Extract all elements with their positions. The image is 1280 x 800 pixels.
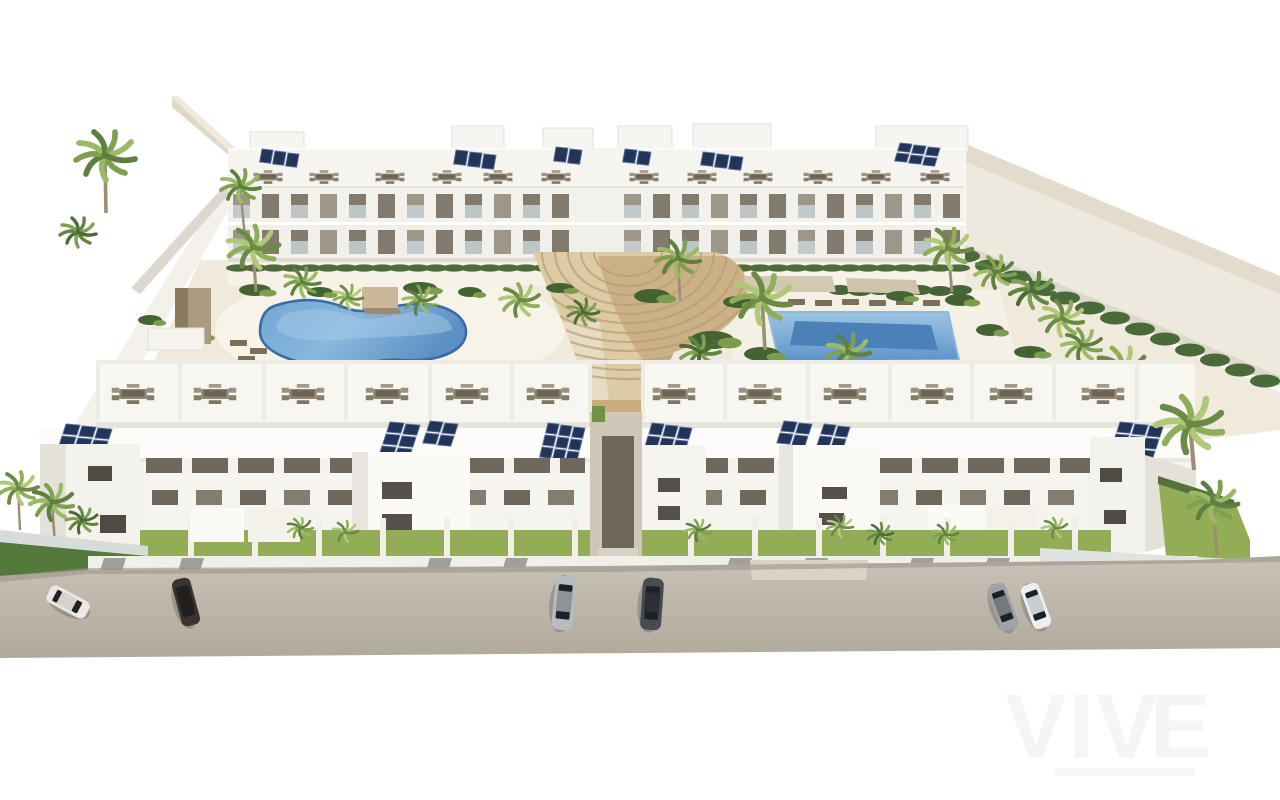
svg-text:VIV: VIV xyxy=(1005,676,1159,778)
svg-text:E: E xyxy=(1150,676,1211,778)
